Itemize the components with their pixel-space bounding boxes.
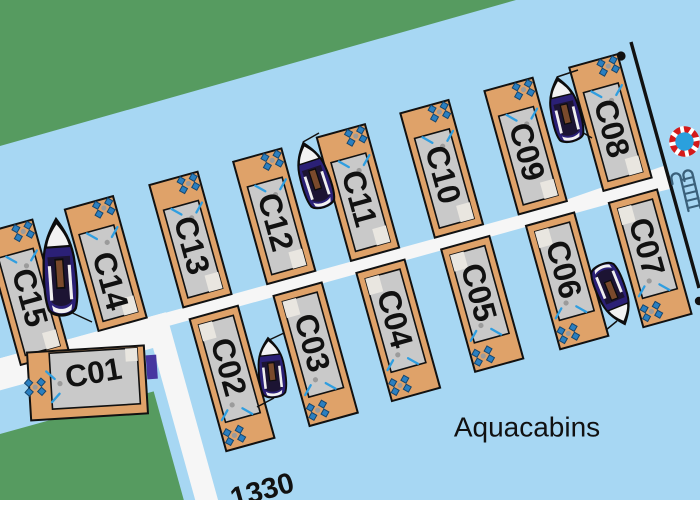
svg-text:Aquacabins: Aquacabins	[454, 412, 600, 443]
